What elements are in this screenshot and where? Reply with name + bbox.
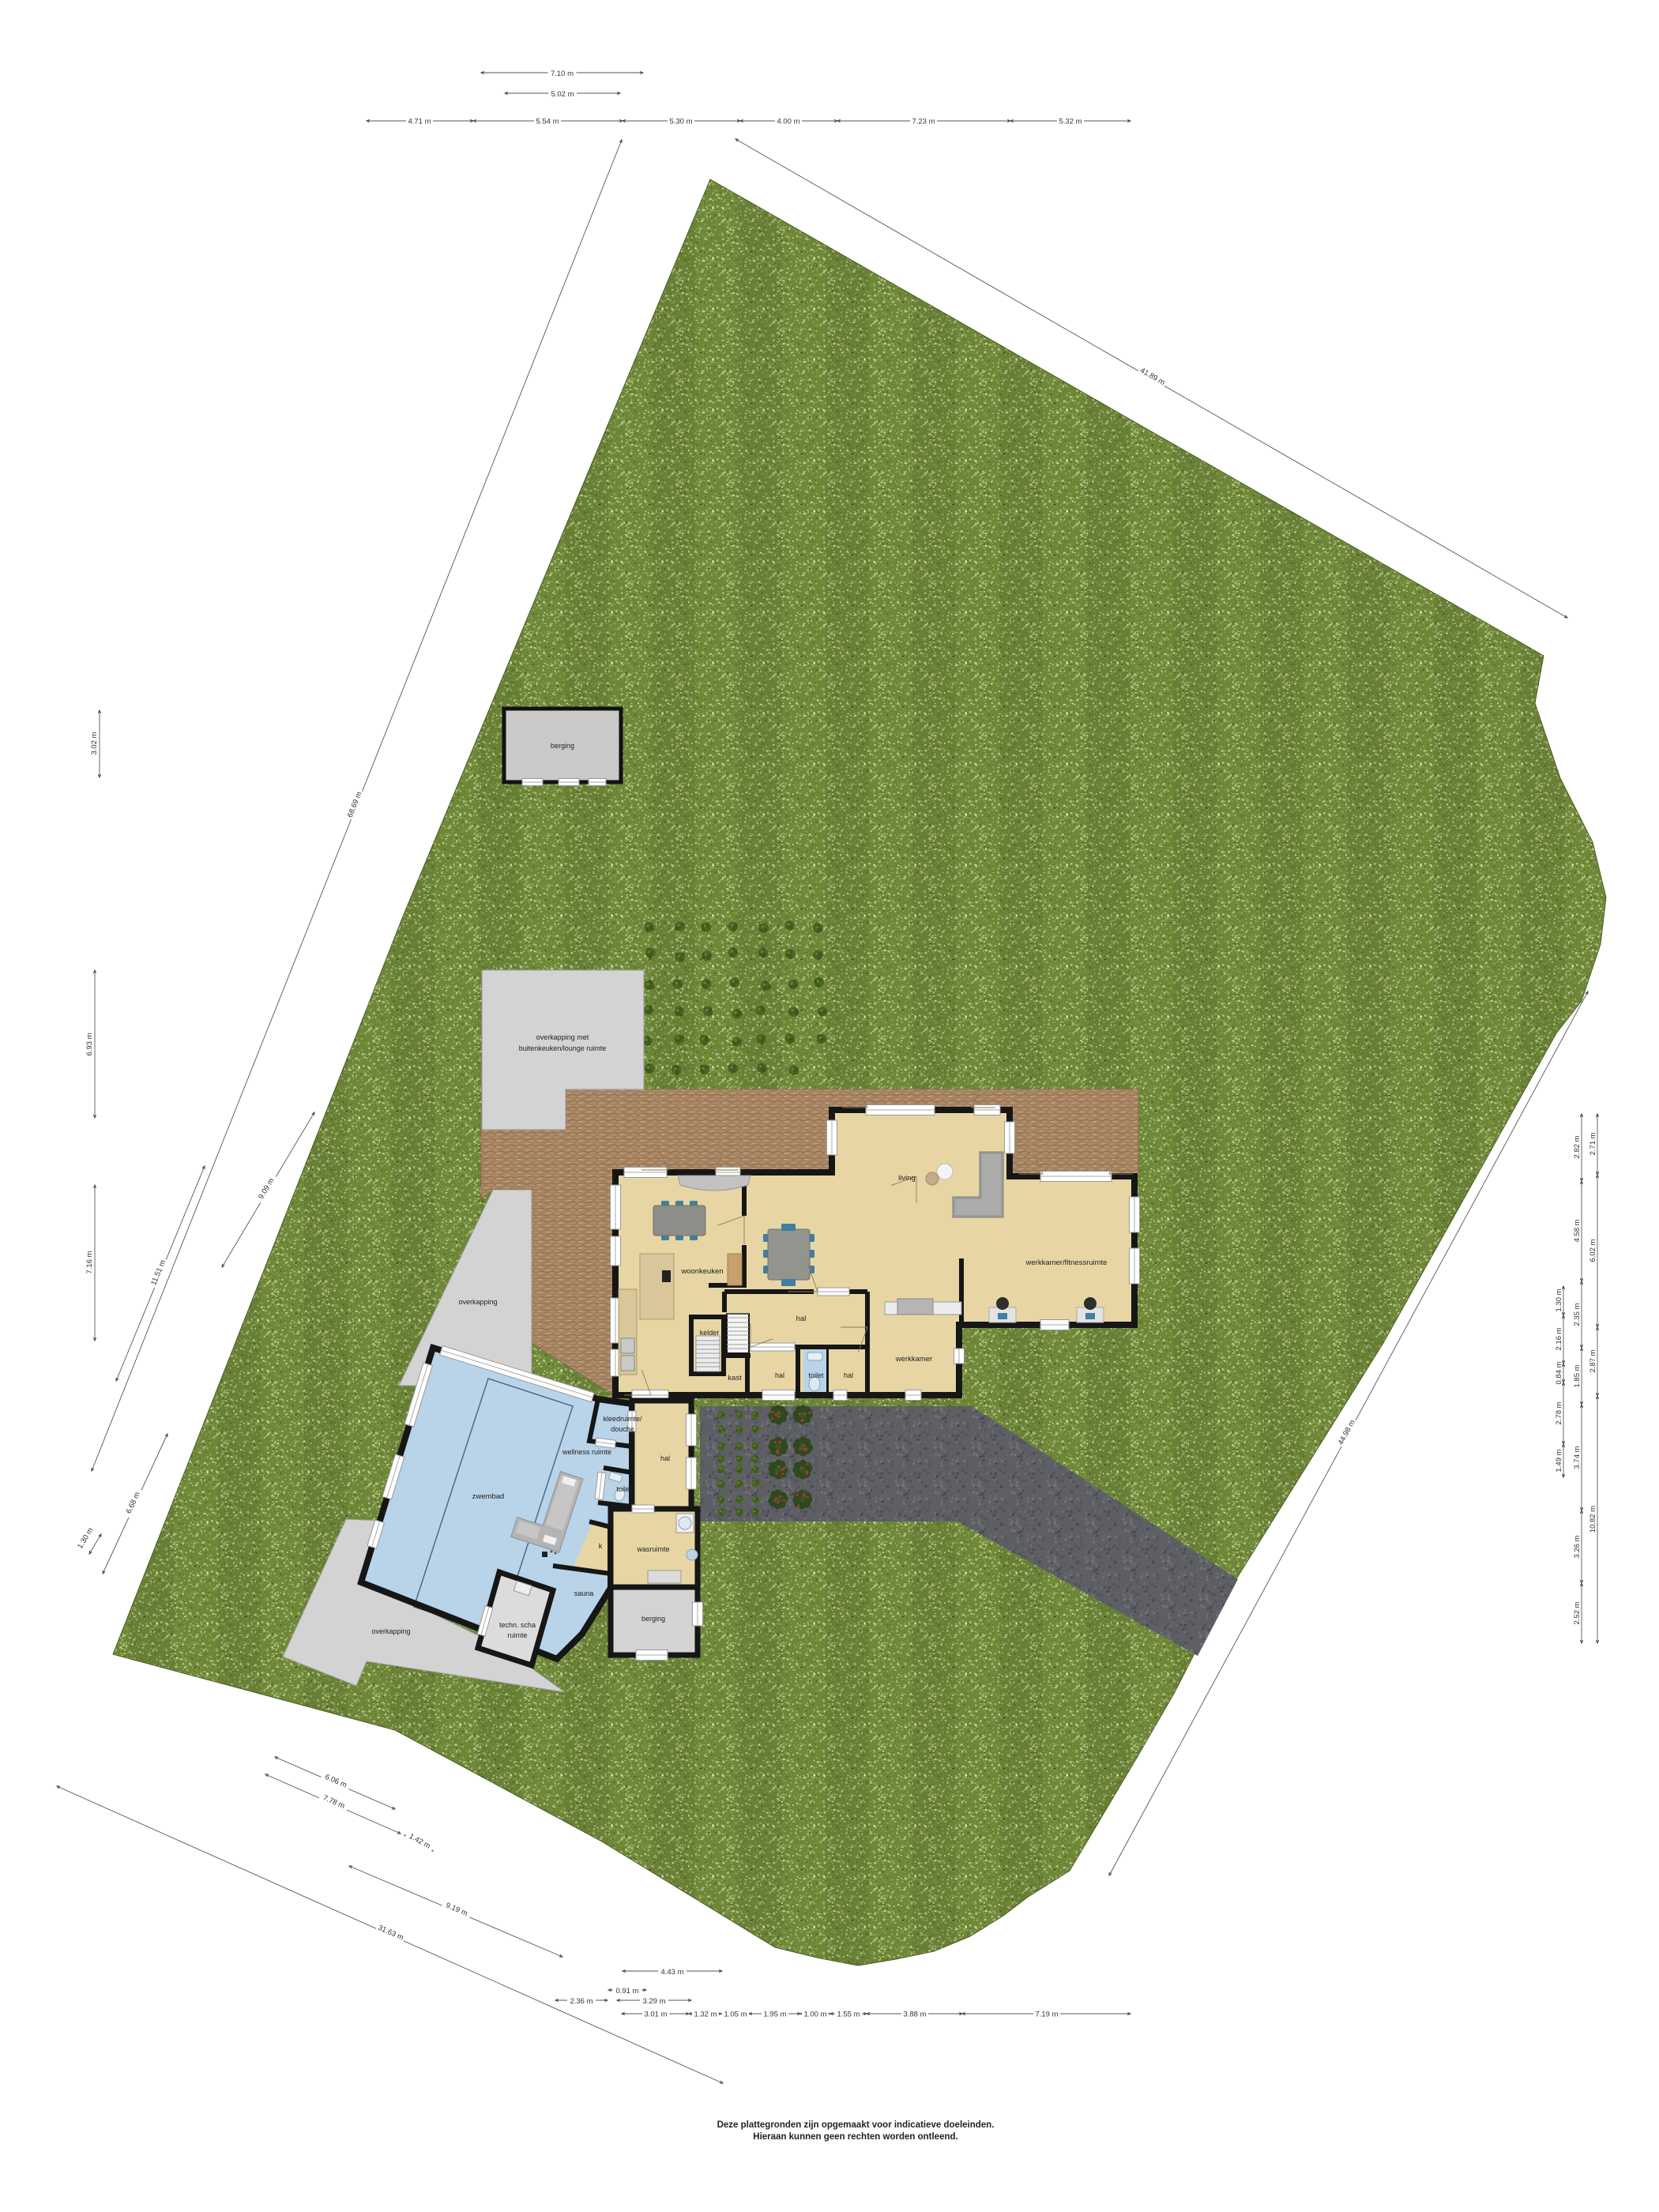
svg-text:3.26 m: 3.26 m	[1573, 1535, 1582, 1558]
svg-text:4.58 m: 4.58 m	[1573, 1219, 1582, 1242]
svg-text:overkapping: overkapping	[458, 1298, 497, 1306]
svg-text:1.49 m: 1.49 m	[1555, 1449, 1563, 1472]
svg-text:woonkeuken: woonkeuken	[680, 1267, 723, 1276]
svg-text:hal: hal	[775, 1371, 784, 1379]
svg-text:4.71 m: 4.71 m	[408, 118, 431, 126]
svg-text:2.36 m: 2.36 m	[570, 1997, 592, 2006]
svg-text:1.05 m: 1.05 m	[724, 2011, 747, 2019]
svg-text:7.23 m: 7.23 m	[912, 118, 935, 126]
svg-text:2.87 m: 2.87 m	[1589, 1349, 1597, 1372]
svg-text:toilet: toilet	[808, 1371, 824, 1379]
svg-text:Deze plattegronden zijn opgema: Deze plattegronden zijn opgemaakt voor i…	[717, 2120, 995, 2130]
svg-text:living: living	[898, 1174, 916, 1183]
svg-text:1.85 m: 1.85 m	[1573, 1364, 1582, 1387]
svg-text:3.74 m: 3.74 m	[1573, 1446, 1582, 1469]
svg-text:hal: hal	[660, 1454, 670, 1462]
svg-text:6.93 m: 6.93 m	[85, 1033, 94, 1055]
svg-text:douche: douche	[611, 1425, 634, 1433]
svg-text:5.32 m: 5.32 m	[1059, 118, 1082, 126]
svg-text:2.71 m: 2.71 m	[1589, 1132, 1597, 1155]
svg-text:3.29 m: 3.29 m	[642, 1997, 665, 2006]
svg-text:1.00 m: 1.00 m	[803, 2011, 826, 2019]
svg-text:overkapping met: overkapping met	[536, 1033, 589, 1041]
svg-text:0.91 m: 0.91 m	[615, 1987, 638, 1996]
svg-text:4.00 m: 4.00 m	[777, 118, 799, 126]
svg-text:5.02 m: 5.02 m	[551, 90, 574, 99]
svg-text:2.78 m: 2.78 m	[1555, 1401, 1563, 1424]
svg-text:techn. scha: techn. scha	[499, 1621, 536, 1629]
svg-text:Hieraan kunnen geen rechten wo: Hieraan kunnen geen rechten worden ontle…	[753, 2132, 957, 2142]
svg-text:wellness ruimte: wellness ruimte	[562, 1448, 611, 1456]
svg-text:1.55 m: 1.55 m	[837, 2011, 860, 2019]
svg-text:werkkamer/fitnessruimte: werkkamer/fitnessruimte	[1025, 1258, 1108, 1267]
svg-text:berging: berging	[641, 1615, 665, 1623]
svg-text:3.02 m: 3.02 m	[90, 732, 99, 754]
svg-text:2.52 m: 2.52 m	[1573, 1601, 1582, 1624]
svg-text:ruimte: ruimte	[507, 1631, 527, 1639]
svg-text:5.30 m: 5.30 m	[669, 118, 692, 126]
svg-text:kelder: kelder	[700, 1329, 720, 1337]
svg-text:sauna: sauna	[574, 1589, 594, 1597]
svg-text:0.84 m: 0.84 m	[1555, 1361, 1563, 1384]
svg-text:1.95 m: 1.95 m	[763, 2011, 786, 2019]
svg-text:7.10 m: 7.10 m	[551, 70, 574, 78]
svg-text:werkkamer: werkkamer	[895, 1355, 932, 1364]
svg-text:toilet: toilet	[616, 1485, 632, 1493]
svg-text:4.43 m: 4.43 m	[660, 1968, 683, 1977]
svg-text:overkapping: overkapping	[371, 1627, 410, 1635]
svg-text:3.88 m: 3.88 m	[903, 2011, 926, 2019]
svg-text:2.16 m: 2.16 m	[1555, 1327, 1563, 1350]
svg-text:2.35 m: 2.35 m	[1573, 1303, 1582, 1326]
svg-text:k: k	[599, 1542, 603, 1550]
svg-text:2.82 m: 2.82 m	[1573, 1135, 1582, 1158]
svg-text:1.32 m: 1.32 m	[694, 2011, 717, 2019]
svg-text:kast: kast	[728, 1374, 742, 1382]
svg-text:kleedruimte/: kleedruimte/	[603, 1415, 642, 1423]
svg-text:7.19 m: 7.19 m	[1035, 2011, 1058, 2019]
svg-text:10.82 m: 10.82 m	[1589, 1506, 1597, 1533]
svg-text:hal: hal	[796, 1315, 807, 1323]
svg-text:berging: berging	[551, 742, 574, 750]
svg-text:wasruimte: wasruimte	[636, 1545, 669, 1553]
svg-text:buitenkeuken/lounge ruimte: buitenkeuken/lounge ruimte	[519, 1044, 607, 1052]
svg-text:5.54 m: 5.54 m	[536, 118, 559, 126]
svg-text:6.02 m: 6.02 m	[1589, 1239, 1597, 1262]
svg-text:1.30 m: 1.30 m	[1555, 1288, 1563, 1311]
svg-text:zwembad: zwembad	[472, 1492, 505, 1501]
svg-text:hal: hal	[844, 1371, 853, 1379]
svg-text:3.01 m: 3.01 m	[644, 2011, 667, 2019]
svg-text:7.16 m: 7.16 m	[85, 1251, 94, 1273]
